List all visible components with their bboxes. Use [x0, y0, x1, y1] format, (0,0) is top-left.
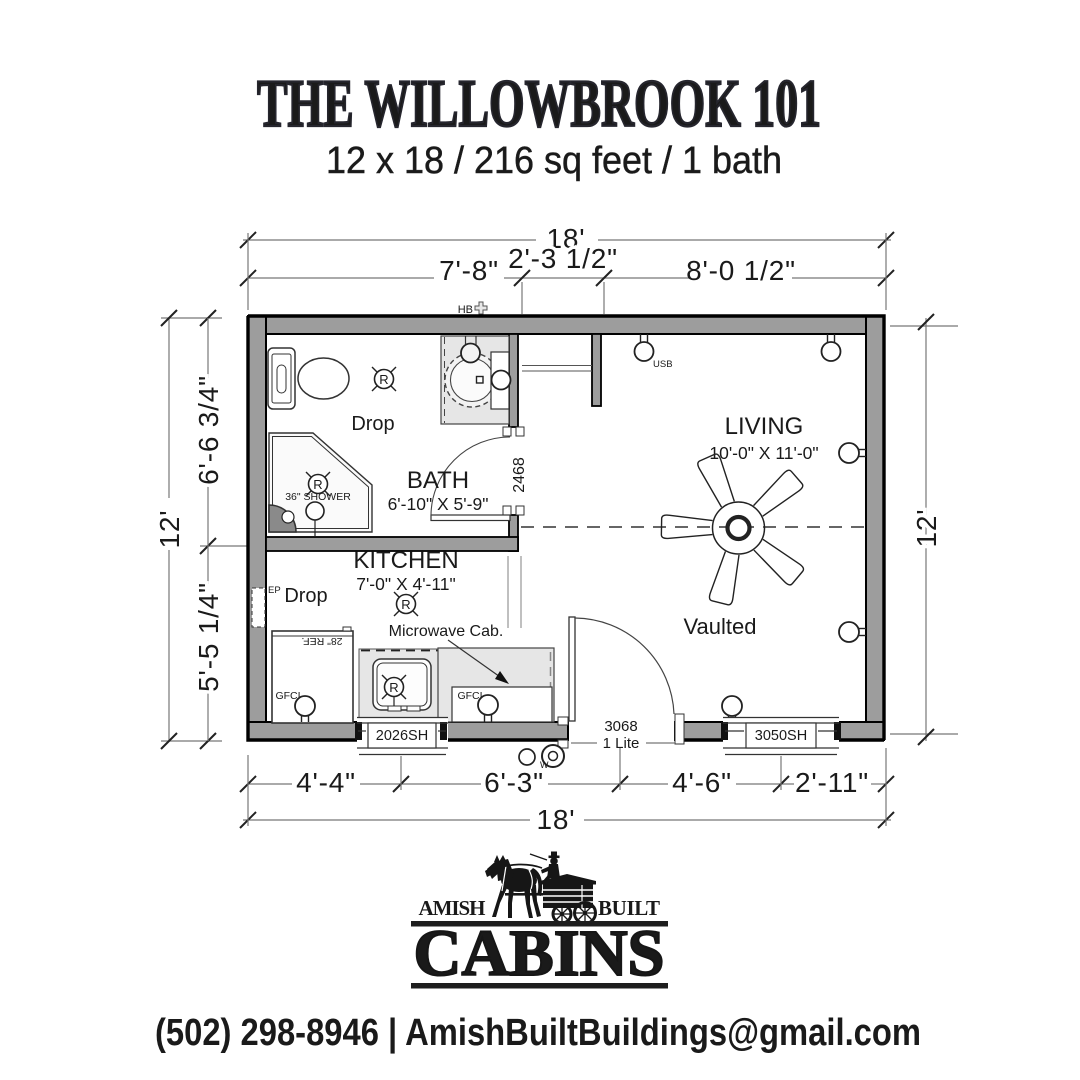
svg-text:Vaulted: Vaulted — [684, 614, 757, 639]
svg-text:R: R — [401, 597, 410, 612]
svg-text:HB: HB — [458, 304, 473, 316]
svg-text:3068: 3068 — [604, 718, 637, 735]
svg-text:10'-0" X 11'-0": 10'-0" X 11'-0" — [709, 443, 818, 463]
svg-text:EP: EP — [268, 585, 281, 596]
svg-text:1 Lite: 1 Lite — [603, 735, 640, 752]
svg-text:8'-0 1/2": 8'-0 1/2" — [686, 255, 796, 286]
svg-text:12': 12' — [154, 510, 185, 549]
svg-text:7'-0" X 4'-11": 7'-0" X 4'-11" — [356, 574, 456, 594]
svg-text:CABINS: CABINS — [414, 917, 665, 990]
svg-text:2'-3 1/2": 2'-3 1/2" — [508, 243, 618, 274]
svg-text:12 x 18 / 216 sq feet / 1 bath: 12 x 18 / 216 sq feet / 1 bath — [326, 140, 782, 182]
svg-text:4'-4": 4'-4" — [296, 767, 356, 798]
svg-text:KITCHEN: KITCHEN — [353, 547, 458, 574]
svg-text:6'-6 3/4": 6'-6 3/4" — [193, 375, 224, 485]
svg-text:Microwave Cab.: Microwave Cab. — [389, 623, 504, 640]
svg-text:R: R — [389, 680, 398, 695]
svg-text:36" SHOWER: 36" SHOWER — [285, 491, 351, 503]
svg-text:R: R — [313, 477, 322, 492]
svg-text:W: W — [540, 760, 549, 770]
svg-text:28" REF.: 28" REF. — [301, 635, 342, 647]
svg-text:3050SH: 3050SH — [755, 728, 807, 744]
svg-text:Drop: Drop — [284, 585, 327, 607]
svg-text:2026SH: 2026SH — [376, 728, 428, 744]
svg-text:6'-3": 6'-3" — [484, 767, 544, 798]
svg-text:(502) 298-8946 | AmishBuiltBui: (502) 298-8946 | AmishBuiltBuildings@gma… — [155, 1012, 921, 1054]
svg-text:R: R — [379, 372, 388, 387]
svg-text:12': 12' — [911, 509, 942, 548]
svg-text:LIVING: LIVING — [725, 413, 804, 440]
svg-text:BATH: BATH — [407, 467, 469, 494]
svg-text:18': 18' — [537, 804, 576, 835]
svg-text:Drop: Drop — [351, 413, 394, 435]
svg-text:5'-5 1/4": 5'-5 1/4" — [193, 582, 224, 692]
svg-text:6'-10" X 5'-9": 6'-10" X 5'-9" — [388, 494, 489, 514]
svg-text:2'-11": 2'-11" — [795, 767, 869, 798]
svg-text:7'-8": 7'-8" — [439, 255, 499, 286]
svg-text:2468: 2468 — [511, 457, 528, 493]
svg-text:4'-6": 4'-6" — [672, 767, 732, 798]
svg-text:THE WILLOWBROOK 101: THE WILLOWBROOK 101 — [257, 65, 821, 141]
svg-text:USB: USB — [653, 359, 673, 370]
